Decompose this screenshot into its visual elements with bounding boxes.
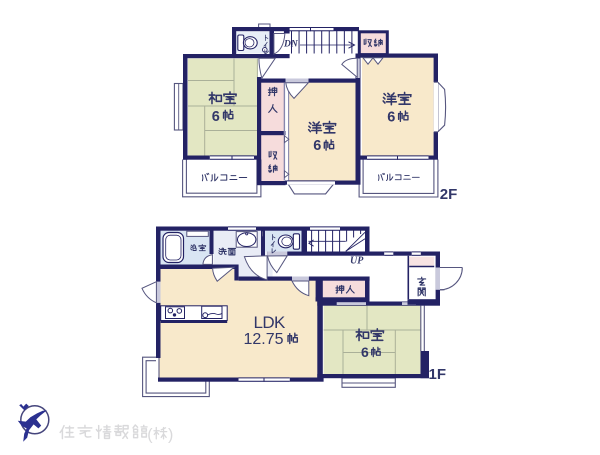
svg-text:(: ( [147, 427, 153, 444]
svg-text:1F: 1F [429, 366, 447, 383]
svg-text:6: 6 [361, 344, 369, 360]
svg-text:): ) [168, 427, 173, 444]
svg-text:2F: 2F [440, 186, 458, 203]
svg-text:UP: UP [350, 256, 364, 267]
svg-text:6: 6 [313, 138, 321, 154]
svg-text:12.75: 12.75 [244, 331, 284, 348]
svg-text:LDK: LDK [254, 313, 287, 332]
svg-text:6: 6 [212, 109, 220, 125]
svg-text:DN: DN [283, 39, 299, 49]
svg-text:6: 6 [387, 109, 395, 125]
